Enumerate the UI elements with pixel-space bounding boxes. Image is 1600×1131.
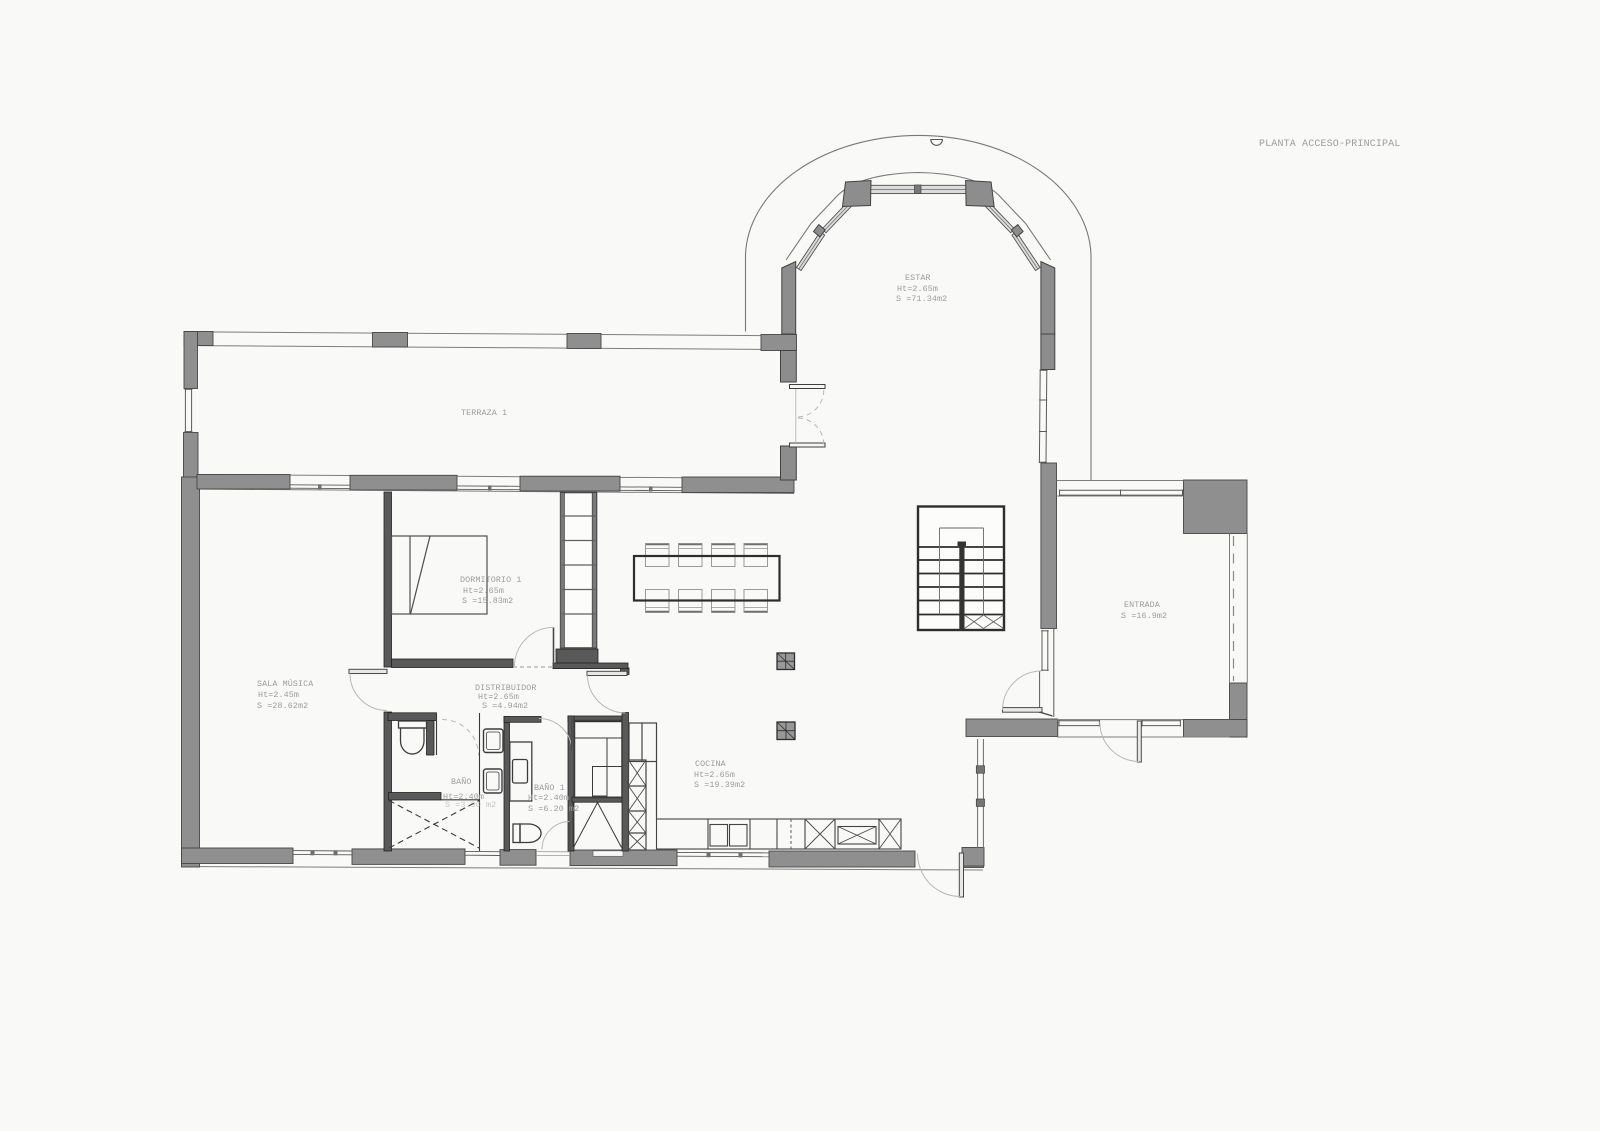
- svg-text:BAÑO: BAÑO: [451, 776, 472, 787]
- svg-text:S =6.20 m2: S =6.20 m2: [528, 804, 579, 814]
- svg-text:SALA MÚSICA: SALA MÚSICA: [257, 678, 314, 689]
- svg-text:Ht=2.65m: Ht=2.65m: [463, 586, 504, 596]
- svg-text:Ht=2.65m: Ht=2.65m: [694, 770, 735, 780]
- svg-text:Ht=2.40m: Ht=2.40m: [528, 793, 569, 803]
- svg-text:S =19.39m2: S =19.39m2: [694, 780, 745, 790]
- svg-text:DORMITORIO 1: DORMITORIO 1: [460, 575, 522, 585]
- svg-text:S =28.62m2: S =28.62m2: [257, 701, 308, 711]
- svg-text:S =15.83m2: S =15.83m2: [462, 596, 513, 606]
- svg-text:Ht=2.65m: Ht=2.65m: [897, 284, 938, 294]
- svg-text:S =4.94m2: S =4.94m2: [482, 701, 528, 711]
- svg-text:S =16.9m2: S =16.9m2: [1121, 611, 1167, 621]
- svg-text:S =3.90 m2: S =3.90 m2: [445, 800, 496, 810]
- svg-text:TERRAZA 1: TERRAZA 1: [461, 408, 507, 418]
- svg-text:S =71.34m2: S =71.34m2: [896, 294, 947, 304]
- svg-text:ESTAR: ESTAR: [905, 273, 931, 283]
- svg-text:ENTRADA: ENTRADA: [1124, 600, 1161, 610]
- svg-text:BAÑO 1: BAÑO 1: [534, 782, 565, 793]
- svg-text:COCINA: COCINA: [695, 759, 727, 769]
- svg-text:Ht=2.45m: Ht=2.45m: [258, 690, 299, 700]
- svg-text:PLANTA ACCESO-PRINCIPAL: PLANTA ACCESO-PRINCIPAL: [1259, 139, 1400, 150]
